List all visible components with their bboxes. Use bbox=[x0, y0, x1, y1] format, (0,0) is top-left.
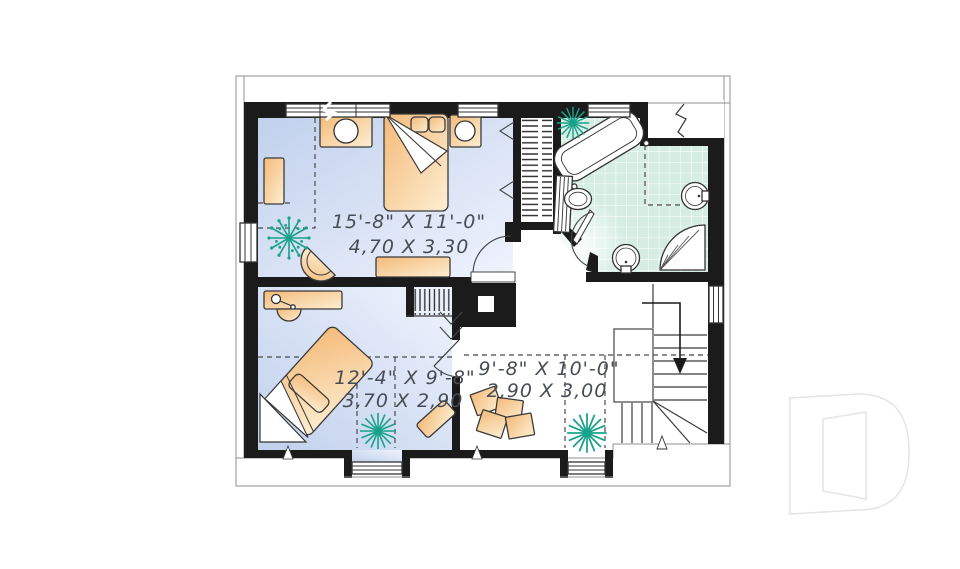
bedroom-2-imperial-label: 12'-4" X 9'-8" bbox=[334, 367, 475, 389]
bed-icon bbox=[384, 114, 448, 211]
dresser-icon bbox=[264, 158, 284, 204]
bedroom-1-imperial-label: 15'-8" X 11'-0" bbox=[332, 211, 486, 233]
pillow-icon bbox=[411, 117, 428, 132]
dresser-icon bbox=[376, 257, 450, 277]
lamp-icon bbox=[455, 121, 475, 141]
hall-imperial-label: 9'-8" X 10'-0" bbox=[478, 358, 619, 380]
desk-icon bbox=[264, 291, 342, 309]
closet-hangers-icon bbox=[414, 289, 452, 315]
door-threshold bbox=[471, 272, 515, 282]
bedroom-2-metric-label: 3,70 X 2,90 bbox=[343, 390, 464, 412]
chimney-icon bbox=[478, 296, 494, 312]
toilet-icon bbox=[565, 189, 592, 210]
floor-plan-page: 15'-8" X 11'-0" 4,70 X 3,30 12'-4" X 9'-… bbox=[0, 0, 960, 569]
sink-icon bbox=[682, 183, 710, 210]
attic-notch bbox=[648, 100, 730, 138]
desk-lamp-icon bbox=[272, 295, 281, 304]
pillow-icon bbox=[429, 117, 445, 132]
lamp-icon bbox=[334, 119, 358, 143]
closet-hangers-icon bbox=[522, 117, 552, 219]
bedroom-1-metric-label: 4,70 X 3,30 bbox=[349, 236, 470, 258]
hall-metric-label: 2,90 X 3,00 bbox=[487, 380, 608, 402]
floor-plan-canvas: 15'-8" X 11'-0" 4,70 X 3,30 12'-4" X 9'-… bbox=[0, 0, 960, 569]
